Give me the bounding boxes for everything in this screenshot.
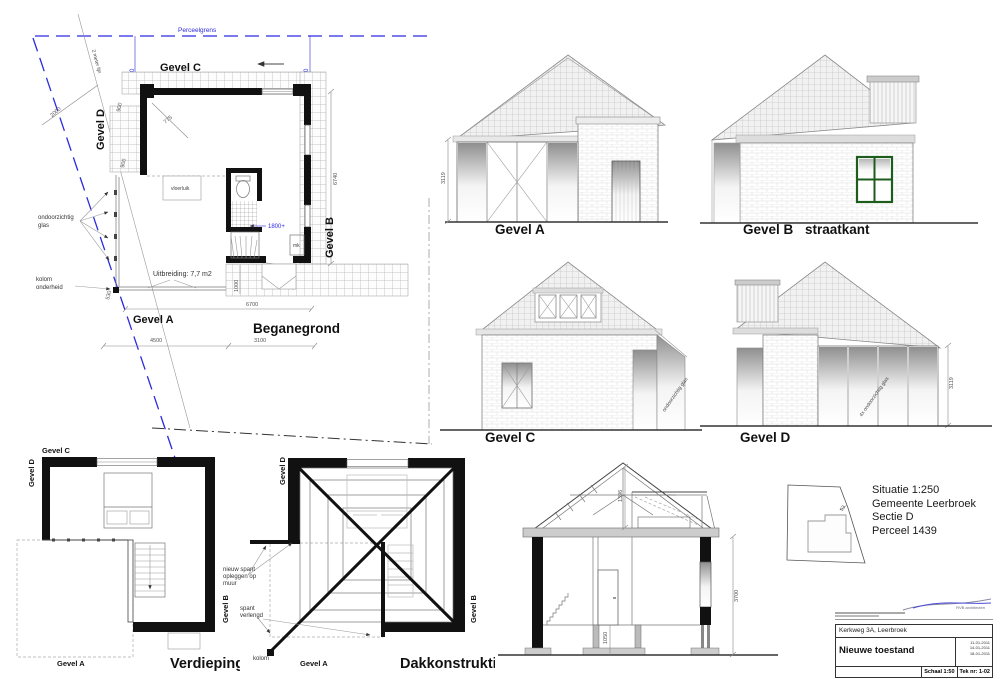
elevation-gevel-d: 4x ondoorzichtig glas 3119 Gevel D (700, 253, 992, 453)
label-gevel-a: Gevel A (57, 659, 85, 668)
brick-block (576, 117, 660, 222)
elevation-gevel-c: ondoorzichtig glas Gevel C (440, 253, 702, 453)
situatie-text: Situatie 1:250 Gemeente Leerbroek Sectie… (872, 484, 976, 538)
brick-pier (763, 335, 818, 426)
svg-text:530: 530 (105, 290, 113, 300)
svg-text:muur: muur (223, 581, 237, 587)
micro-address (835, 612, 993, 620)
svg-text:6700: 6700 (246, 302, 258, 308)
svg-text:3700: 3700 (734, 590, 740, 602)
uitbreiding-note: Uitbreiding: 7,7 m2 (153, 271, 212, 278)
dim-3119: 3119 (441, 172, 447, 184)
perceelgrens-label: Perceelgrens (178, 27, 217, 34)
label: Gevel C (485, 430, 536, 445)
walls (140, 84, 311, 263)
sheet-number: Tek nr: 1-02 (957, 667, 992, 677)
svg-text:1000: 1000 (234, 280, 240, 292)
label-gevel-d: Gevel D (27, 458, 36, 487)
vloerluik-label: vloerluik (171, 186, 190, 192)
svg-text:glas: glas (38, 223, 49, 229)
svg-text:kolom: kolom (36, 277, 52, 283)
boundary-dashdot (152, 428, 432, 444)
green-window (857, 157, 892, 202)
label-gevel-c: Gevel C (160, 62, 201, 74)
svg-text:spant: spant (240, 606, 255, 612)
elevation-gevel-a: 3119 Gevel A (440, 18, 700, 243)
logo: RVB architecten (835, 596, 993, 612)
title-table: Kerkweg 3A, Leerbroek Nieuwe toestand 11… (835, 624, 993, 678)
kolom-label: kolom (253, 656, 269, 662)
svg-text:775: 775 (163, 115, 174, 126)
label-gevel-a: Gevel A (300, 659, 328, 668)
svg-text:6740: 6740 (333, 173, 339, 185)
chimney (168, 633, 200, 649)
scale-label: Schaal 1:50 (921, 667, 956, 677)
existing-outline (17, 540, 133, 657)
situatie-line4: Perceel 1439 (872, 525, 976, 539)
kolom-note: kolom onderheid (36, 277, 110, 291)
svg-text:onderheid: onderheid (36, 285, 63, 291)
dim-2000: 2000 (49, 106, 62, 119)
dormer (867, 76, 919, 123)
floor-slab (523, 528, 719, 537)
label-gevel-c: Gevel C (42, 446, 71, 455)
dimensions: 1396 3700 1050 (603, 464, 740, 657)
elevation-gevel-b: Gevel B straatkant (700, 18, 992, 243)
date-3: 18-01-2011 (956, 651, 990, 657)
dim-1800: 1800+ (268, 224, 285, 230)
svg-text:verlengd: verlengd (240, 613, 263, 619)
label-gevel-d: Gevel D (95, 109, 107, 150)
logo-text: RVB architecten (956, 605, 985, 610)
walls (42, 457, 215, 632)
svg-text:1050: 1050 (603, 632, 609, 644)
svg-text:1396: 1396 (618, 490, 624, 502)
glass-wall: 4x ondoorzichtig glas (818, 346, 938, 426)
note-verlengd: spant verlengd (240, 606, 263, 619)
drawing-title: Nieuwe toestand (836, 638, 955, 666)
stairs (135, 543, 165, 597)
label: Gevel B (743, 222, 794, 237)
plan-dakkonstruktie: nieuw spant opleggen op muur spant verle… (215, 445, 495, 675)
situatie-line3: Sectie D (872, 511, 976, 525)
dim-3119: 3119 (949, 377, 955, 389)
label-gevel-b: Gevel B (324, 217, 336, 258)
svg-text:opleggen op: opleggen op (223, 574, 257, 580)
drawing-sheet: Perceelgrens 1950 1930 2 meter lijn 2000 (0, 0, 1000, 679)
dormer (533, 288, 603, 322)
label-gevel-a: Gevel A (133, 314, 174, 326)
svg-text:3100: 3100 (254, 338, 266, 344)
plan-beganegrond: Perceelgrens 1950 1930 2 meter lijn 2000 (0, 0, 440, 462)
note-spant: nieuw spant opleggen op muur (223, 567, 257, 587)
svg-text:4500: 4500 (150, 338, 162, 344)
leaders (248, 543, 370, 635)
svg-text:ondoorzichtig: ondoorzichtig (38, 215, 74, 221)
sublabel: straatkant (805, 222, 870, 237)
glass-wall (457, 142, 578, 222)
glas-note: ondoorzichtig glas (38, 192, 109, 260)
svg-text:nieuw spant: nieuw spant (223, 567, 255, 573)
door (737, 348, 763, 426)
plan-title: Dakkonstruktie (400, 656, 495, 672)
structure (525, 537, 719, 655)
bed (104, 473, 152, 528)
perceelgrens-lines (33, 36, 428, 458)
roof-terrace (632, 492, 715, 530)
project-address: Kerkweg 3A, Leerbroek (836, 625, 992, 638)
label: Gevel D (740, 430, 791, 445)
label: Gevel A (495, 222, 545, 237)
two-meter-label: 2 meter lijn (90, 49, 102, 74)
section-drawing: 1396 3700 1050 (495, 450, 785, 665)
porch (712, 140, 740, 223)
revision-dates: 11-01-2011 14-01-2011 18-01-2011 (955, 638, 992, 666)
situatie-line2: Gemeente Leerbroek (872, 498, 976, 512)
mk-label: mk (293, 243, 300, 249)
dormer-block (735, 280, 780, 322)
plan-verdieping: Gevel C Gevel D Gevel A Gevel B Verdiepi… (12, 445, 240, 675)
ghost-furniture (347, 475, 413, 597)
situatie-line1: Situatie 1:250 (872, 484, 976, 498)
label-gevel-b: Gevel B (469, 594, 478, 623)
plan-title: Beganegrond (253, 321, 340, 336)
title-block: RVB architecten Kerkweg 3A, Leerbroek Ni… (835, 596, 993, 678)
window (502, 363, 532, 408)
label-gevel-d: Gevel D (278, 456, 287, 485)
